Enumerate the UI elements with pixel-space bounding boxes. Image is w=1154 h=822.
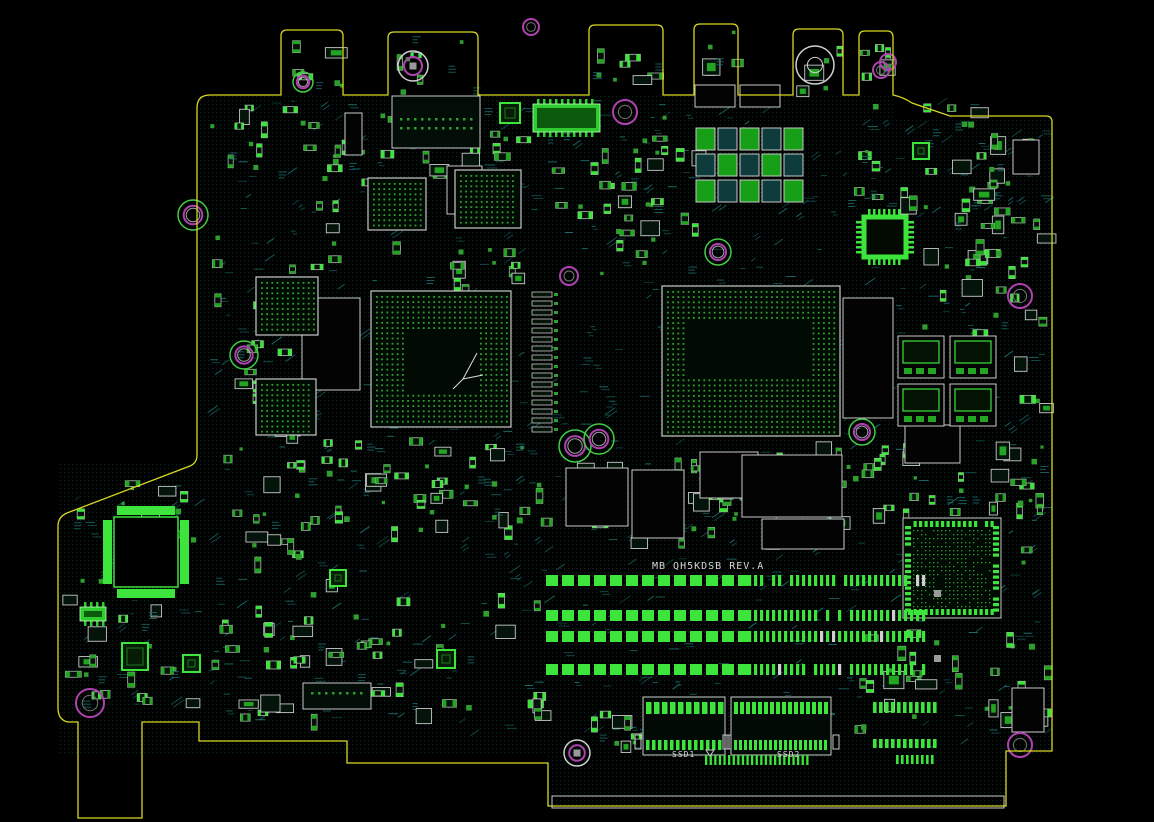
capacitor-bank[interactable] bbox=[696, 128, 803, 202]
soic-chip[interactable] bbox=[533, 99, 600, 137]
ssd1-label: SSD1 bbox=[672, 750, 695, 759]
dark-component-box bbox=[742, 455, 842, 517]
dark-component-box bbox=[632, 470, 684, 538]
pcb-board-view[interactable]: MB QH5KDSB REV.A SSD1 SSD2 bbox=[0, 0, 1154, 822]
dark-component-box bbox=[843, 298, 893, 418]
connector-pin-row[interactable] bbox=[873, 702, 937, 713]
qfn-chip[interactable] bbox=[122, 643, 148, 670]
header-connector[interactable] bbox=[303, 683, 371, 709]
mounting-hole-2[interactable] bbox=[523, 19, 539, 35]
component-cluster bbox=[703, 31, 744, 76]
qfn-chip[interactable] bbox=[437, 650, 455, 668]
bga-top-2[interactable] bbox=[455, 170, 521, 228]
component-cluster bbox=[593, 49, 664, 85]
ssd2-label: SSD2 bbox=[777, 750, 800, 759]
ec-qfp[interactable] bbox=[103, 506, 189, 598]
board-canvas[interactable]: MB QH5KDSB REV.A SSD1 SSD2 bbox=[0, 0, 1154, 822]
bga-top-1[interactable] bbox=[368, 178, 426, 230]
dark-component-box bbox=[762, 519, 844, 549]
gpu-bga[interactable] bbox=[371, 291, 511, 427]
bga-bottom-right[interactable] bbox=[903, 518, 1001, 618]
qfn-chip[interactable] bbox=[330, 570, 346, 586]
connector-pin-row[interactable] bbox=[873, 739, 937, 748]
qfn-chip[interactable] bbox=[500, 103, 520, 123]
bga-left-1[interactable] bbox=[256, 277, 318, 335]
alignment-square bbox=[934, 590, 941, 597]
qfn-chip[interactable] bbox=[913, 143, 929, 159]
connector-box[interactable] bbox=[345, 113, 362, 155]
connector-box[interactable] bbox=[695, 85, 735, 107]
connector-box[interactable] bbox=[1012, 688, 1044, 732]
cpu-bga[interactable] bbox=[662, 286, 840, 436]
dark-component-box bbox=[566, 468, 628, 526]
dark-component-box bbox=[905, 425, 960, 463]
connector-box[interactable] bbox=[1013, 140, 1039, 174]
alignment-square bbox=[934, 655, 941, 662]
board-model-label: MB QH5KDSB REV.A bbox=[652, 561, 764, 572]
header-connector[interactable] bbox=[392, 96, 480, 148]
bga-left-2[interactable] bbox=[256, 379, 316, 435]
ssd1-connector[interactable] bbox=[635, 697, 733, 755]
qfn-chip[interactable] bbox=[183, 655, 200, 672]
component-cluster bbox=[293, 41, 348, 89]
io-qfp[interactable] bbox=[856, 209, 914, 265]
ssd2-connector[interactable] bbox=[723, 697, 839, 755]
mounting-hole-12[interactable] bbox=[293, 72, 313, 92]
connector-box[interactable] bbox=[740, 85, 780, 107]
